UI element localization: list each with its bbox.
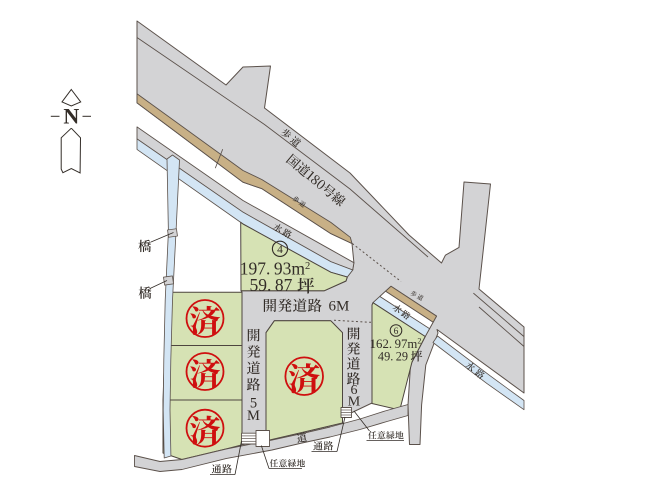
svg-text:59. 87: 59. 87 (250, 275, 293, 295)
svg-text:N: N (63, 104, 79, 129)
svg-text:4: 4 (277, 244, 283, 256)
svg-text:M: M (247, 408, 260, 424)
svg-text:6M: 6M (329, 299, 350, 315)
svg-text:6: 6 (394, 327, 399, 337)
svg-text:49. 29: 49. 29 (378, 349, 408, 363)
svg-text:M: M (348, 395, 361, 410)
